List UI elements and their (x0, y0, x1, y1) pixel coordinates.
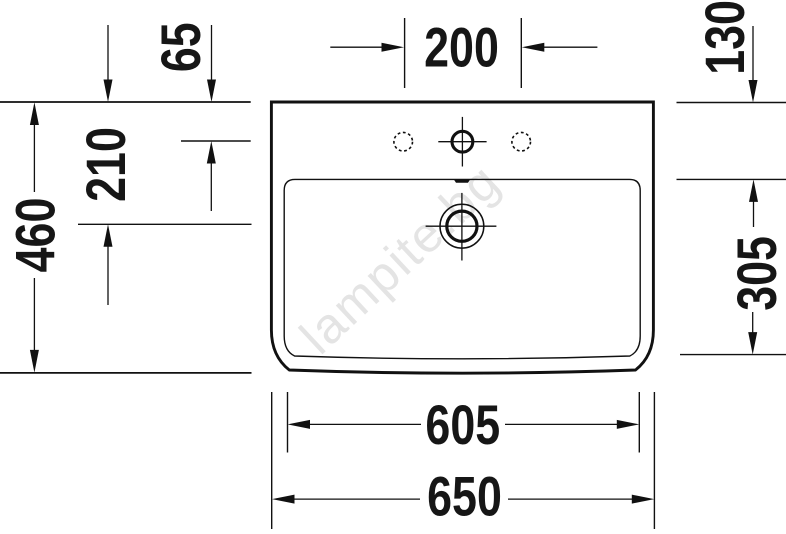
svg-text:210: 210 (74, 127, 137, 202)
svg-text:650: 650 (427, 465, 502, 528)
svg-text:305: 305 (725, 236, 786, 311)
svg-text:130: 130 (693, 0, 756, 75)
svg-text:605: 605 (425, 393, 500, 456)
svg-text:460: 460 (4, 198, 67, 273)
svg-text:65: 65 (149, 22, 212, 72)
svg-text:200: 200 (424, 16, 499, 79)
